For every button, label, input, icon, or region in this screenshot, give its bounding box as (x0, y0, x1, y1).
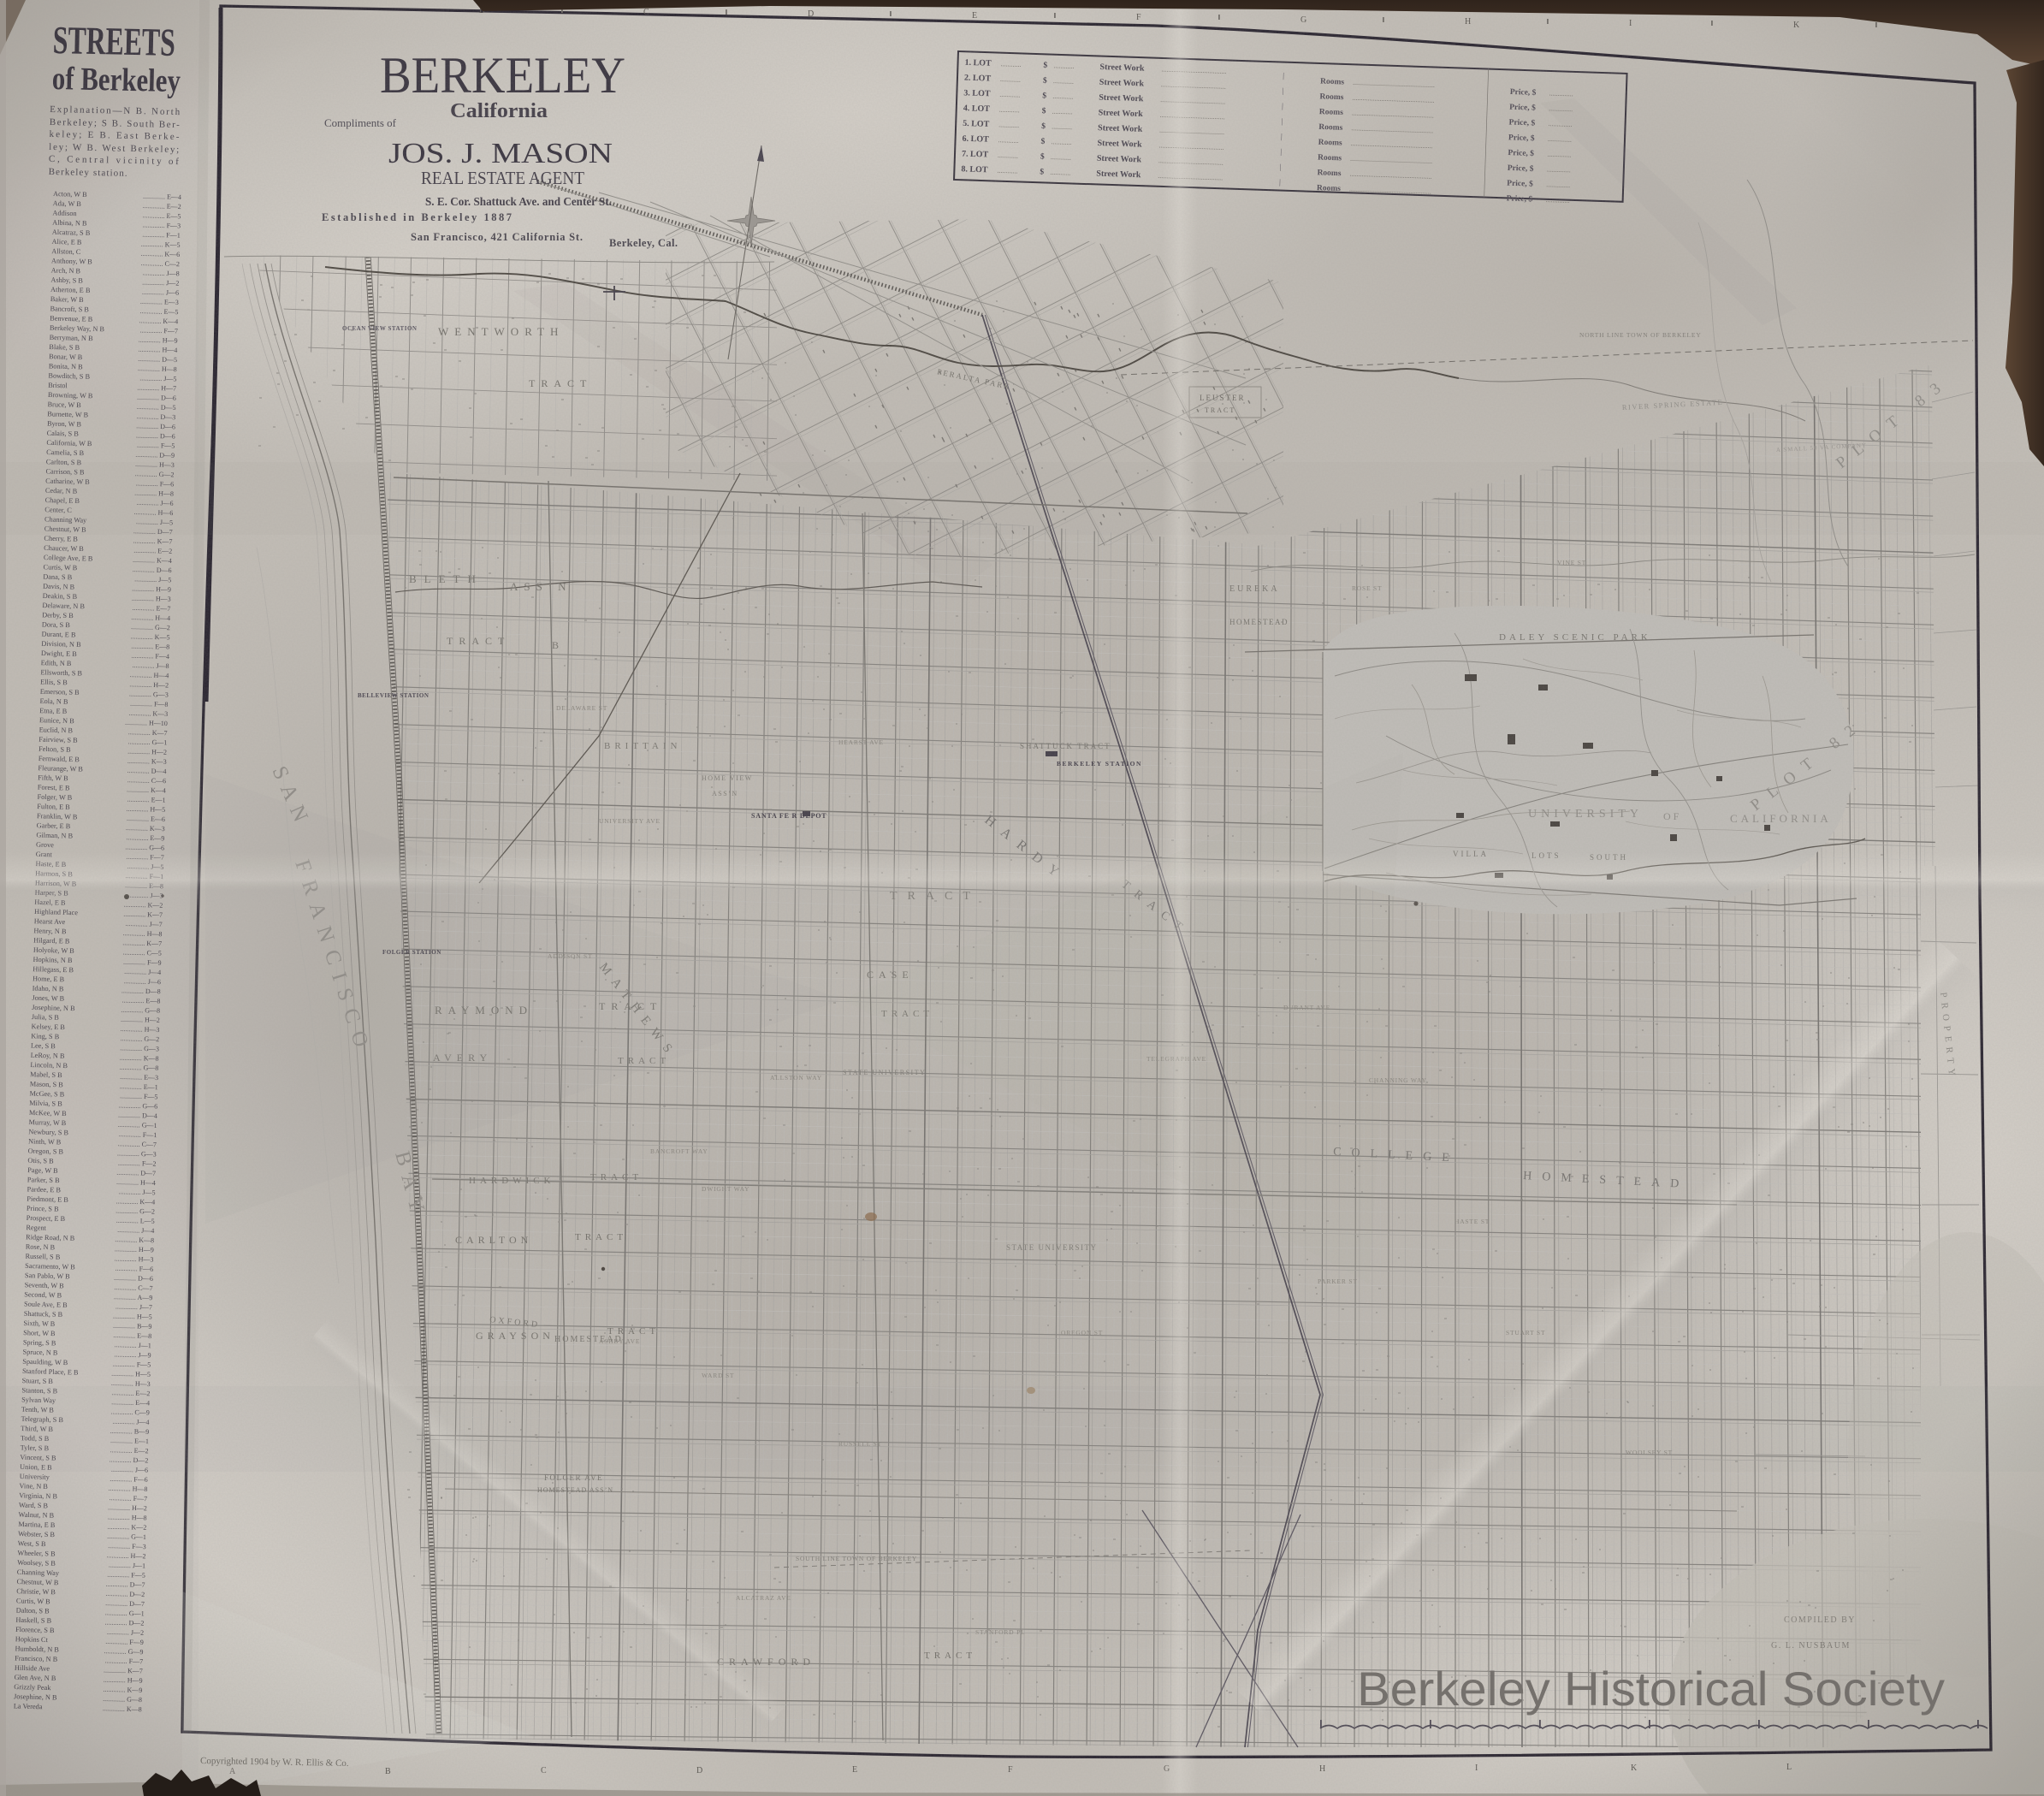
svg-text:Berkeley Historical Society: Berkeley Historical Society (1357, 1662, 1945, 1716)
